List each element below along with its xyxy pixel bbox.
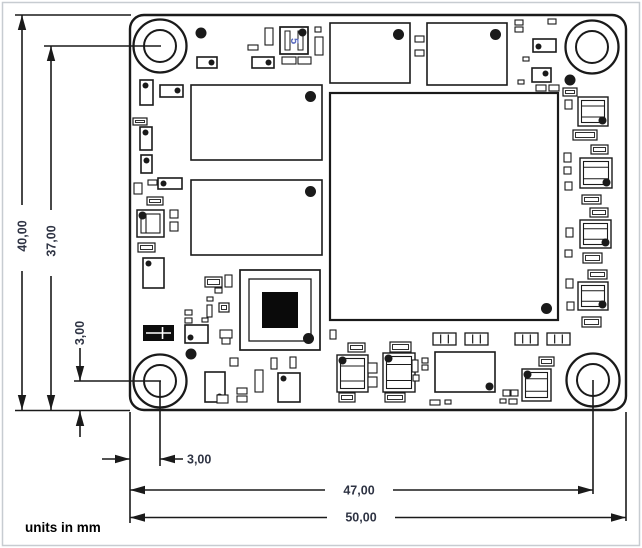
drawing-graphics: 5	[3, 3, 640, 546]
units-note: units in mm	[25, 520, 101, 535]
dim-label-hole-to-bottom: 37,00	[45, 225, 59, 256]
dim-label-edge-to-hole: 47,00	[343, 484, 374, 498]
dim-label-hole-offset-vertical: 3,00	[73, 321, 87, 345]
pcb-dimension-drawing: 5 40,00 37,00 3,00 3,00 47,00 50,00 unit…	[0, 0, 642, 548]
dim-label-hole-offset-horizontal: 3,00	[187, 453, 211, 467]
dim-label-board-width: 50,00	[345, 511, 376, 525]
dim-label-board-height: 40,00	[16, 220, 30, 251]
pcb-dimension-drawing-page: 5 40,00 37,00 3,00 3,00 47,00 50,00 unit…	[0, 0, 642, 548]
svg-text:5: 5	[288, 38, 300, 44]
